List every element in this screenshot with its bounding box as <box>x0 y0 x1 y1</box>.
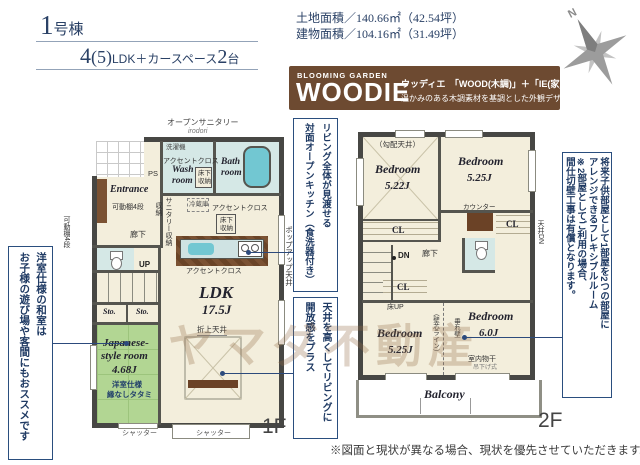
f1-underfloor-box-kitchen: 床下 収納 <box>216 214 236 234</box>
f2-part-toilet-bottom <box>462 270 495 273</box>
f2-part-closet1-top <box>363 219 438 221</box>
brand-tagline-2: 温かみのある木調素材を基調とした外観デザイン <box>401 95 577 103</box>
plan-count-unit: 台 <box>227 52 239 66</box>
f1-bath-room-label-2: room <box>221 169 242 179</box>
f2-part-stairs-right <box>391 245 393 302</box>
land-area: 土地面積／140.66㎡（42.54坪） <box>296 12 464 24</box>
f1-part-sto-bottom <box>92 322 161 325</box>
f2-toilet-bowl <box>476 247 487 260</box>
f1-jp-room-size: 4.68J <box>112 365 137 376</box>
leader-ceiling <box>223 373 293 374</box>
f2-hallway-label: 廊下 <box>422 250 438 258</box>
f2-window-left <box>356 158 364 206</box>
f1-kitchen-sink <box>188 243 214 255</box>
f1-part-sto-divider <box>126 302 128 322</box>
plan-rooms: 4 <box>80 43 91 68</box>
f1-popup-ceiling-label: ポップアップ天井 <box>285 226 293 286</box>
plan-mid: LDK＋カースペース <box>112 52 217 66</box>
leader-kitchen <box>249 252 293 253</box>
f1-underfloor-wash-1: 床下 <box>198 171 211 178</box>
f1-fridge-label: 冷蔵庫 <box>189 202 209 209</box>
f2-counter-label: カウンター <box>463 205 496 212</box>
leader-dot-kitchen <box>246 250 251 255</box>
f1-toilet-bowl <box>111 257 122 270</box>
f1-floor-label: 1F <box>262 416 287 437</box>
building-title: 1号棟 <box>40 12 84 39</box>
note-kitchen-col2: 対面オープンキッチン（食洗器付き） <box>300 123 317 287</box>
brand-name: WOODIE <box>296 79 410 105</box>
f2-bed1-label: Bedroom <box>375 163 420 175</box>
note-flex-col2: アレンジできるフレキシブルルーム <box>586 157 597 393</box>
f1-part-wet-bottom <box>160 193 281 196</box>
f1-ps-label: PS <box>148 170 158 178</box>
title-rule-2 <box>36 69 258 70</box>
f2-balcony-tick-1 <box>420 398 421 414</box>
f1-part-hall-right <box>158 245 161 425</box>
compass-north-label: N <box>566 6 579 20</box>
f2-ceiling-dn-label: 天井DN <box>537 220 544 244</box>
f2-cl-label-1: CL <box>392 226 405 235</box>
f1-up-label: UP <box>139 261 150 269</box>
f1-wall-right <box>279 137 284 428</box>
floorplan-flyer: 1号棟 4(5)LDK＋カースペース2台 土地面積／140.66㎡（42.54坪… <box>0 0 640 465</box>
f1-underfloor-kitchen-1: 床下 <box>220 218 233 225</box>
f1-accent-cross-counter: アクセントクロス <box>186 268 242 275</box>
f1-stairs <box>97 273 158 302</box>
f1-window-left <box>90 345 97 390</box>
brand-banner: BLOOMING GARDEN WOODIE ウッディエ 「WOOD(木調)」＋… <box>289 66 560 110</box>
f2-bed1-sloped-ceiling-marks <box>363 137 438 220</box>
f1-sanitary-storage-label: サニタリー収納 <box>165 197 172 246</box>
f2-sloped-ceiling-label: （勾配天井） <box>375 141 420 149</box>
building-area: 建物面積／104.16㎡（31.49坪） <box>296 28 464 40</box>
compass-icon: N <box>558 6 632 92</box>
f1-shelf4-outside-label: 可動棚4段 <box>63 216 70 248</box>
note-kitchen: リビング全体が見渡せる 対面オープンキッチン（食洗器付き） <box>293 118 338 292</box>
f1-window-right-1 <box>278 215 285 265</box>
f2-part-bed1-right <box>438 137 441 242</box>
f1-window-bottom <box>118 423 158 429</box>
building-suffix: 号棟 <box>54 21 84 38</box>
f2-bed2-size: 5.25J <box>467 173 492 184</box>
f1-shelf4-label: 可動棚4段 <box>112 204 144 211</box>
f1-storage-label: 収納 <box>155 202 162 216</box>
f2-window-top-1 <box>395 130 425 138</box>
f2-counter-desk <box>467 213 493 231</box>
f1-underfloor-wash-2: 収納 <box>198 179 211 186</box>
f1-ldk-label: LDK <box>199 284 233 301</box>
disclaimer: ※図面と現状が異なる場合、現状を優先させていただきます。 <box>330 446 640 458</box>
f2-bed2-label: Bedroom <box>458 155 503 167</box>
f1-wash-room-label-2: room <box>172 177 193 187</box>
f1-sto-label-2: Sto. <box>136 308 149 316</box>
f2-dn-dot <box>392 256 396 260</box>
f1-open-sanitary-sub: irodori <box>188 128 207 135</box>
watermark-text: ヤマダ不動産 <box>168 310 480 376</box>
f1-shutter-label-2: シャッター <box>196 430 231 437</box>
note-flexible-room: 将来子供部屋として1部屋を2つの部屋に アレンジできるフレキシブルルーム ※2部… <box>562 152 612 398</box>
plan-paren: (5) <box>91 47 112 67</box>
f2-balcony-label: Balcony <box>424 388 465 400</box>
f1-porch <box>96 141 144 177</box>
f2-floor-label: 2F <box>538 410 563 431</box>
f1-part-wash-bath <box>213 141 216 195</box>
f2-cl-label-3: CL <box>397 283 410 292</box>
f2-dn-label: DN <box>398 252 410 260</box>
f1-jp-room-label-2: style room <box>101 351 148 362</box>
building-number: 1 <box>40 10 54 40</box>
note-left-col1: 洋室仕様の和室は <box>32 252 49 454</box>
f1-accent-cross-kitchen-back: アクセントクロス <box>212 205 268 212</box>
f1-entrance-label: Entrance <box>110 185 148 195</box>
plan-count: 2 <box>217 46 227 68</box>
f2-part-closet1-bottom <box>363 240 438 242</box>
f1-washer-label: 洗濯機 <box>166 145 186 152</box>
f2-balcony-tick-2 <box>470 398 471 414</box>
f2-window-right <box>528 150 536 192</box>
f1-jp-room-note-1: 洋室仕様 <box>112 381 142 389</box>
f1-sto-label-1: Sto. <box>103 308 116 316</box>
f1-jp-room-note-2: 縁なしタタミ <box>107 391 152 399</box>
f1-underfloor-box-wash: 床下 収納 <box>195 167 212 188</box>
f1-underfloor-kitchen-2: 収納 <box>220 226 233 233</box>
leader-dot-ceiling <box>220 371 225 376</box>
f1-accent-cross-wash: アクセントクロス <box>163 158 219 165</box>
f1-bath-room-label-1: Bath <box>221 158 240 168</box>
note-flex-col3: ※2部屋としてご利用の場合、 <box>575 157 586 393</box>
plan-title: 4(5)LDK＋カースペース2台 <box>80 45 239 67</box>
f1-wash-room-label-1: Wash <box>172 166 193 176</box>
leader-dot-jp-room <box>124 341 129 346</box>
f1-part-hall-top <box>92 245 161 248</box>
brand-tagline-1: ウッディエ 「WOOD(木調)」＋「IE(家)」 <box>401 80 571 89</box>
leader-flex-room <box>465 337 562 338</box>
note-left: 洋室仕様の和室は お子様の遊び場や客間にもおススメです <box>8 246 53 460</box>
title-rule-1 <box>36 41 258 42</box>
f1-part-toilet-bottom <box>92 270 161 273</box>
f1-hallway-label: 廊下 <box>130 231 146 239</box>
f1-open-sanitary-label: オープンサニタリー <box>167 119 239 127</box>
leader-jp-room <box>52 343 128 344</box>
note-flex-col1: 将来子供部屋として1部屋を2つの部屋に <box>598 157 609 393</box>
f2-cl-label-2: CL <box>506 220 519 229</box>
f1-tv-board <box>188 380 238 388</box>
f1-stove-burner-2 <box>251 244 259 252</box>
note-flex-col4: 間仕切壁工事は有償となります。 <box>563 157 574 393</box>
f1-shutter-label-1: シャッター <box>122 430 157 437</box>
f2-part-toilet-left <box>462 238 465 273</box>
f1-bathtub <box>243 146 271 188</box>
f2-window-top-2 <box>445 130 483 138</box>
note-left-col2: お子様の遊び場や客間にもおススメです <box>15 252 32 454</box>
f1-shoe-cabinet <box>97 179 107 223</box>
f2-bed1-size: 5.22J <box>385 181 410 192</box>
leader-dot-flex-room <box>462 335 467 340</box>
f2-part-bedrooms-top <box>362 300 533 303</box>
note-kitchen-col1: リビング全体が見渡せる <box>317 123 334 287</box>
